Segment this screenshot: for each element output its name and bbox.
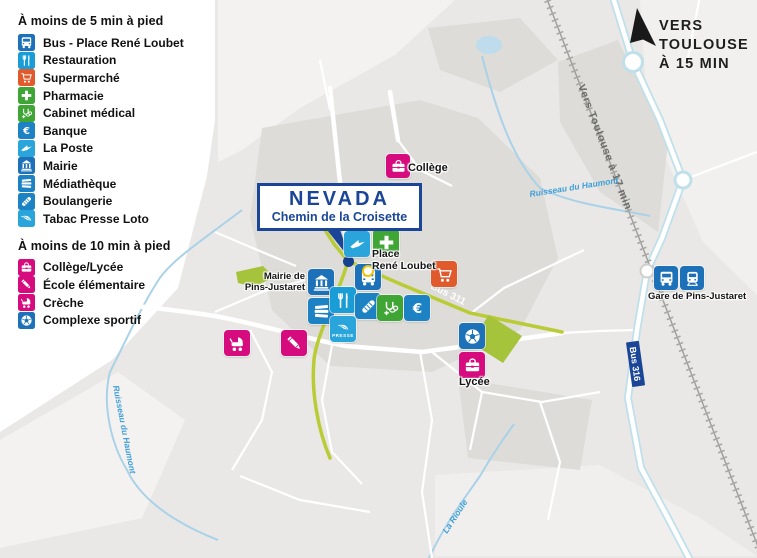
fork-knife-icon	[18, 52, 35, 69]
gare-label: Gare de Pins-Justaret	[648, 291, 746, 303]
bus-icon	[18, 34, 35, 51]
toulouse-direction-sign: VERS TOULOUSE À 15 MIN	[659, 17, 749, 74]
legend-item-bus: Bus - Place René Loubet	[18, 34, 216, 52]
pond	[476, 36, 502, 54]
legend-item-tabac-presse: Tabac Presse Loto	[18, 210, 216, 228]
school-bag-icon	[459, 352, 485, 378]
legend-item-creche: Crèche	[18, 294, 216, 312]
fork-knife-icon	[330, 287, 356, 313]
stethoscope-icon	[377, 295, 403, 321]
laposte-bird-icon	[18, 140, 35, 157]
place-rene-loubet-label: Place René Loubet	[372, 248, 436, 272]
quill-icon: PRESSE	[330, 316, 356, 342]
legend-item-mairie: Mairie	[18, 157, 216, 175]
legend-section-title-10min: À moins de 10 min à pied	[18, 239, 216, 253]
legend-item-cabinet-medical: Cabinet médical	[18, 104, 216, 122]
pencil-icon	[281, 330, 307, 356]
pharmacy-cross-icon	[18, 87, 35, 104]
legend-item-mediatheque: Médiathèque	[18, 175, 216, 193]
baguette-icon	[18, 193, 35, 210]
legend-item-boulangerie: Boulangerie	[18, 192, 216, 210]
euro-icon	[18, 122, 35, 139]
nevada-site-dot	[343, 256, 354, 267]
school-bag-icon	[18, 259, 35, 276]
laposte-bird-icon	[344, 231, 370, 257]
mairie-label: Mairie de Pins-Justaret	[216, 271, 305, 293]
stroller-icon	[224, 330, 250, 356]
stroller-icon	[18, 294, 35, 311]
books-icon	[18, 175, 35, 192]
pencil-icon	[18, 276, 35, 293]
lycee-label: Lycée	[459, 376, 490, 388]
presse-label: PRESSE	[332, 333, 354, 338]
roundabout	[675, 172, 691, 188]
callout-subtitle: Chemin de la Croisette	[262, 210, 417, 224]
legend-panel: À moins de 5 min à pied Bus - Place René…	[18, 14, 216, 329]
bus-icon	[654, 266, 678, 290]
town-hall-icon	[18, 157, 35, 174]
football-icon	[459, 323, 485, 349]
quill-icon	[18, 210, 35, 227]
roundabout	[624, 53, 643, 72]
location-map: Vers Toulouse à 17 min Bus 311 Bus 316 R…	[0, 0, 757, 558]
callout-title: NEVADA	[262, 189, 417, 210]
legend-item-ecole: École élémentaire	[18, 276, 216, 294]
legend-item-supermarche: Supermarché	[18, 69, 216, 87]
college-label: Collège	[408, 162, 448, 174]
euro-icon	[404, 295, 430, 321]
roundabout	[641, 265, 654, 278]
legend-section-title-5min: À moins de 5 min à pied	[18, 14, 216, 28]
train-icon	[680, 266, 704, 290]
legend-item-complexe-sportif: Complexe sportif	[18, 311, 216, 329]
legend-item-restauration: Restauration	[18, 52, 216, 70]
school-bag-icon	[386, 154, 410, 178]
football-icon	[18, 312, 35, 329]
stethoscope-icon	[18, 105, 35, 122]
shopping-cart-icon	[18, 69, 35, 86]
legend-item-pharmacie: Pharmacie	[18, 87, 216, 105]
legend-item-banque: Banque	[18, 122, 216, 140]
nevada-callout: NEVADA Chemin de la Croisette	[257, 183, 422, 231]
legend-item-la-poste: La Poste	[18, 140, 216, 158]
legend-item-college-lycee: Collège/Lycée	[18, 259, 216, 277]
